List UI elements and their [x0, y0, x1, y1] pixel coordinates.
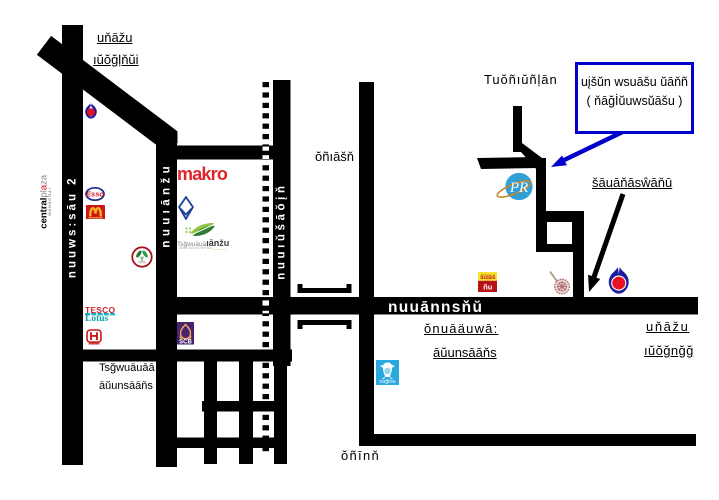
svg-text:Esso: Esso — [86, 190, 104, 199]
svg-text:PR: PR — [509, 180, 528, 196]
svg-text:SCB: SCB — [179, 339, 192, 344]
svg-text:ñu: ñu — [483, 282, 493, 291]
svg-text:nsğlnu: nsğlnu — [379, 379, 395, 385]
svg-text:šŭļäš: šŭļäš — [480, 274, 496, 280]
